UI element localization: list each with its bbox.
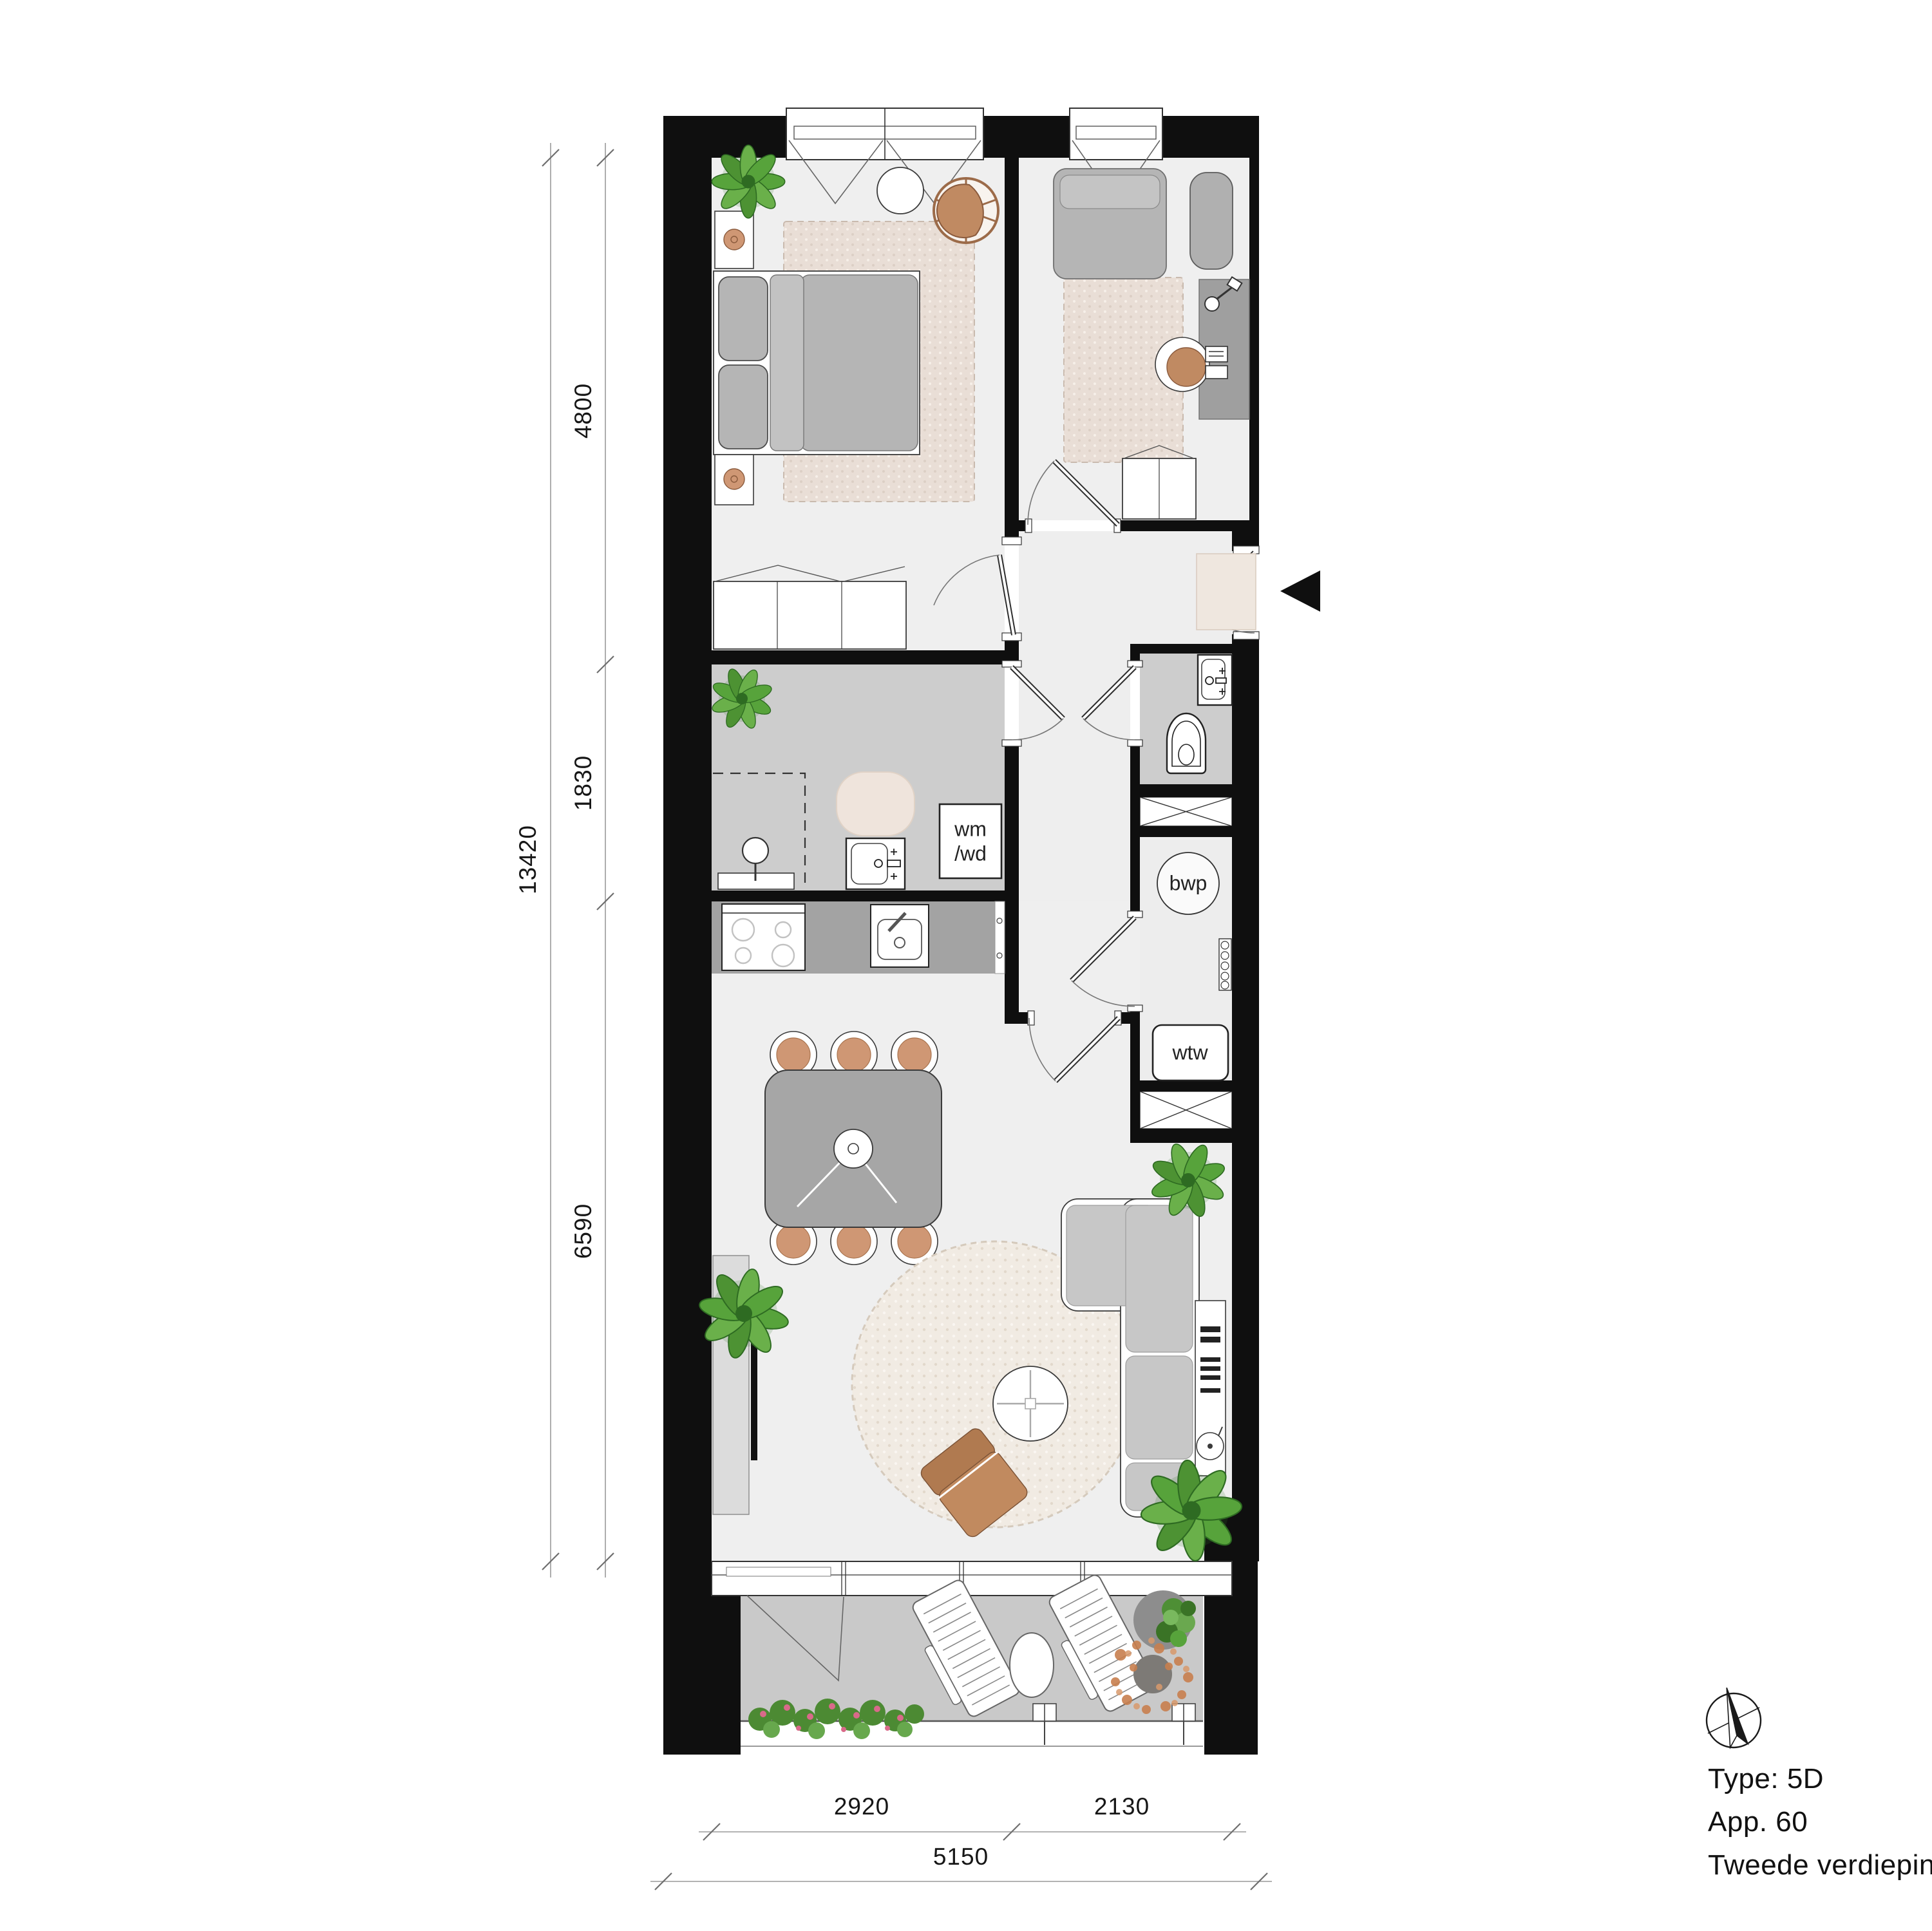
shaft-box-2: [1140, 1091, 1232, 1129]
dim-label-segment-6590: 6590: [570, 1203, 597, 1259]
title-floor: Tweede verdieping: [1708, 1849, 1932, 1881]
dim-label-segment-4800: 4800: [570, 383, 597, 438]
washer-dryer-label-line2: /wd: [954, 842, 987, 866]
desk-chair: [1155, 337, 1209, 391]
toilet-bowl: [1167, 713, 1206, 773]
dim-label-vertical-total: 13420: [515, 825, 542, 894]
shaft-box-1: [1140, 797, 1232, 826]
rattan-chair: [934, 178, 998, 243]
dim-label-horizontal-total: 5150: [933, 1843, 989, 1870]
cooktop: [722, 904, 805, 970]
dim-ticks-vertical: [542, 149, 614, 1570]
heat-recovery-label: wtw: [1172, 1041, 1207, 1065]
kitchen-sink: [871, 905, 929, 967]
plant-bedroom-1: [712, 145, 784, 218]
compass-north-arrow-icon: [1707, 1686, 1761, 1747]
title-apartment: App. 60: [1708, 1806, 1808, 1838]
duvet: [800, 275, 918, 451]
doormat: [1197, 554, 1256, 630]
title-type: Type: 5D: [1708, 1763, 1824, 1795]
entrance-direction-arrow-icon: [1280, 570, 1320, 612]
washbasin-toilet: [1198, 655, 1232, 705]
double-bed: [714, 271, 920, 455]
balcony-side-table: [1010, 1633, 1054, 1697]
washer-dryer-box: [940, 804, 1001, 878]
coffee-table: [993, 1366, 1068, 1441]
booster-pump-label: bwp: [1170, 872, 1207, 896]
media-console: [1195, 1301, 1226, 1476]
dining-set: [765, 1031, 942, 1265]
single-bed: [1054, 169, 1166, 279]
washbasin-bathroom: [846, 838, 905, 889]
side-table-round: [877, 167, 923, 214]
pillow: [719, 277, 768, 361]
dim-label-segment-2130: 2130: [1094, 1793, 1150, 1820]
kitchen: [712, 901, 1005, 974]
nightstand-top: [715, 211, 753, 268]
pillow: [719, 365, 768, 449]
washer-dryer-label-line1: wm: [954, 818, 987, 842]
dim-label-segment-2920: 2920: [834, 1793, 889, 1820]
floorplan-drawing: [0, 0, 1932, 1931]
counter-end-panel: [995, 901, 1005, 974]
bath-mat: [837, 772, 914, 836]
lounge-cushion: [1190, 173, 1233, 269]
nightstand-bottom: [715, 453, 753, 505]
dim-label-segment-1830: 1830: [570, 755, 597, 811]
wall-grille: [1219, 939, 1231, 990]
floorplan-page: 13420 4800 1830 6590 2920 2130 5150 wm /…: [0, 0, 1932, 1931]
